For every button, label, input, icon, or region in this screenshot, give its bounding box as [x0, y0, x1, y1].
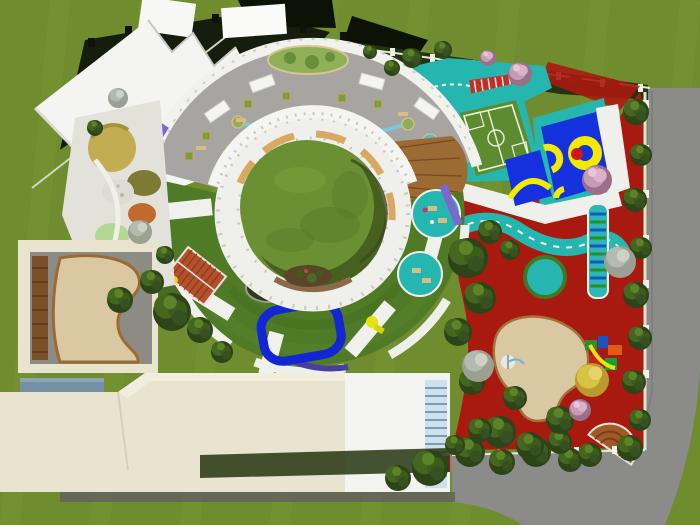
west-court-block	[18, 240, 158, 373]
building-shadow-strip	[60, 492, 455, 502]
teal-terrace-b	[398, 252, 442, 296]
center-spot	[571, 148, 583, 160]
wood-shelves	[32, 256, 48, 360]
courtyard-planter-bed	[284, 265, 332, 287]
teal-pad	[525, 257, 565, 297]
white-panel-b	[221, 4, 287, 38]
aerial-site-render	[0, 0, 700, 525]
ring-building	[214, 112, 411, 308]
striped-pergola	[588, 204, 608, 298]
